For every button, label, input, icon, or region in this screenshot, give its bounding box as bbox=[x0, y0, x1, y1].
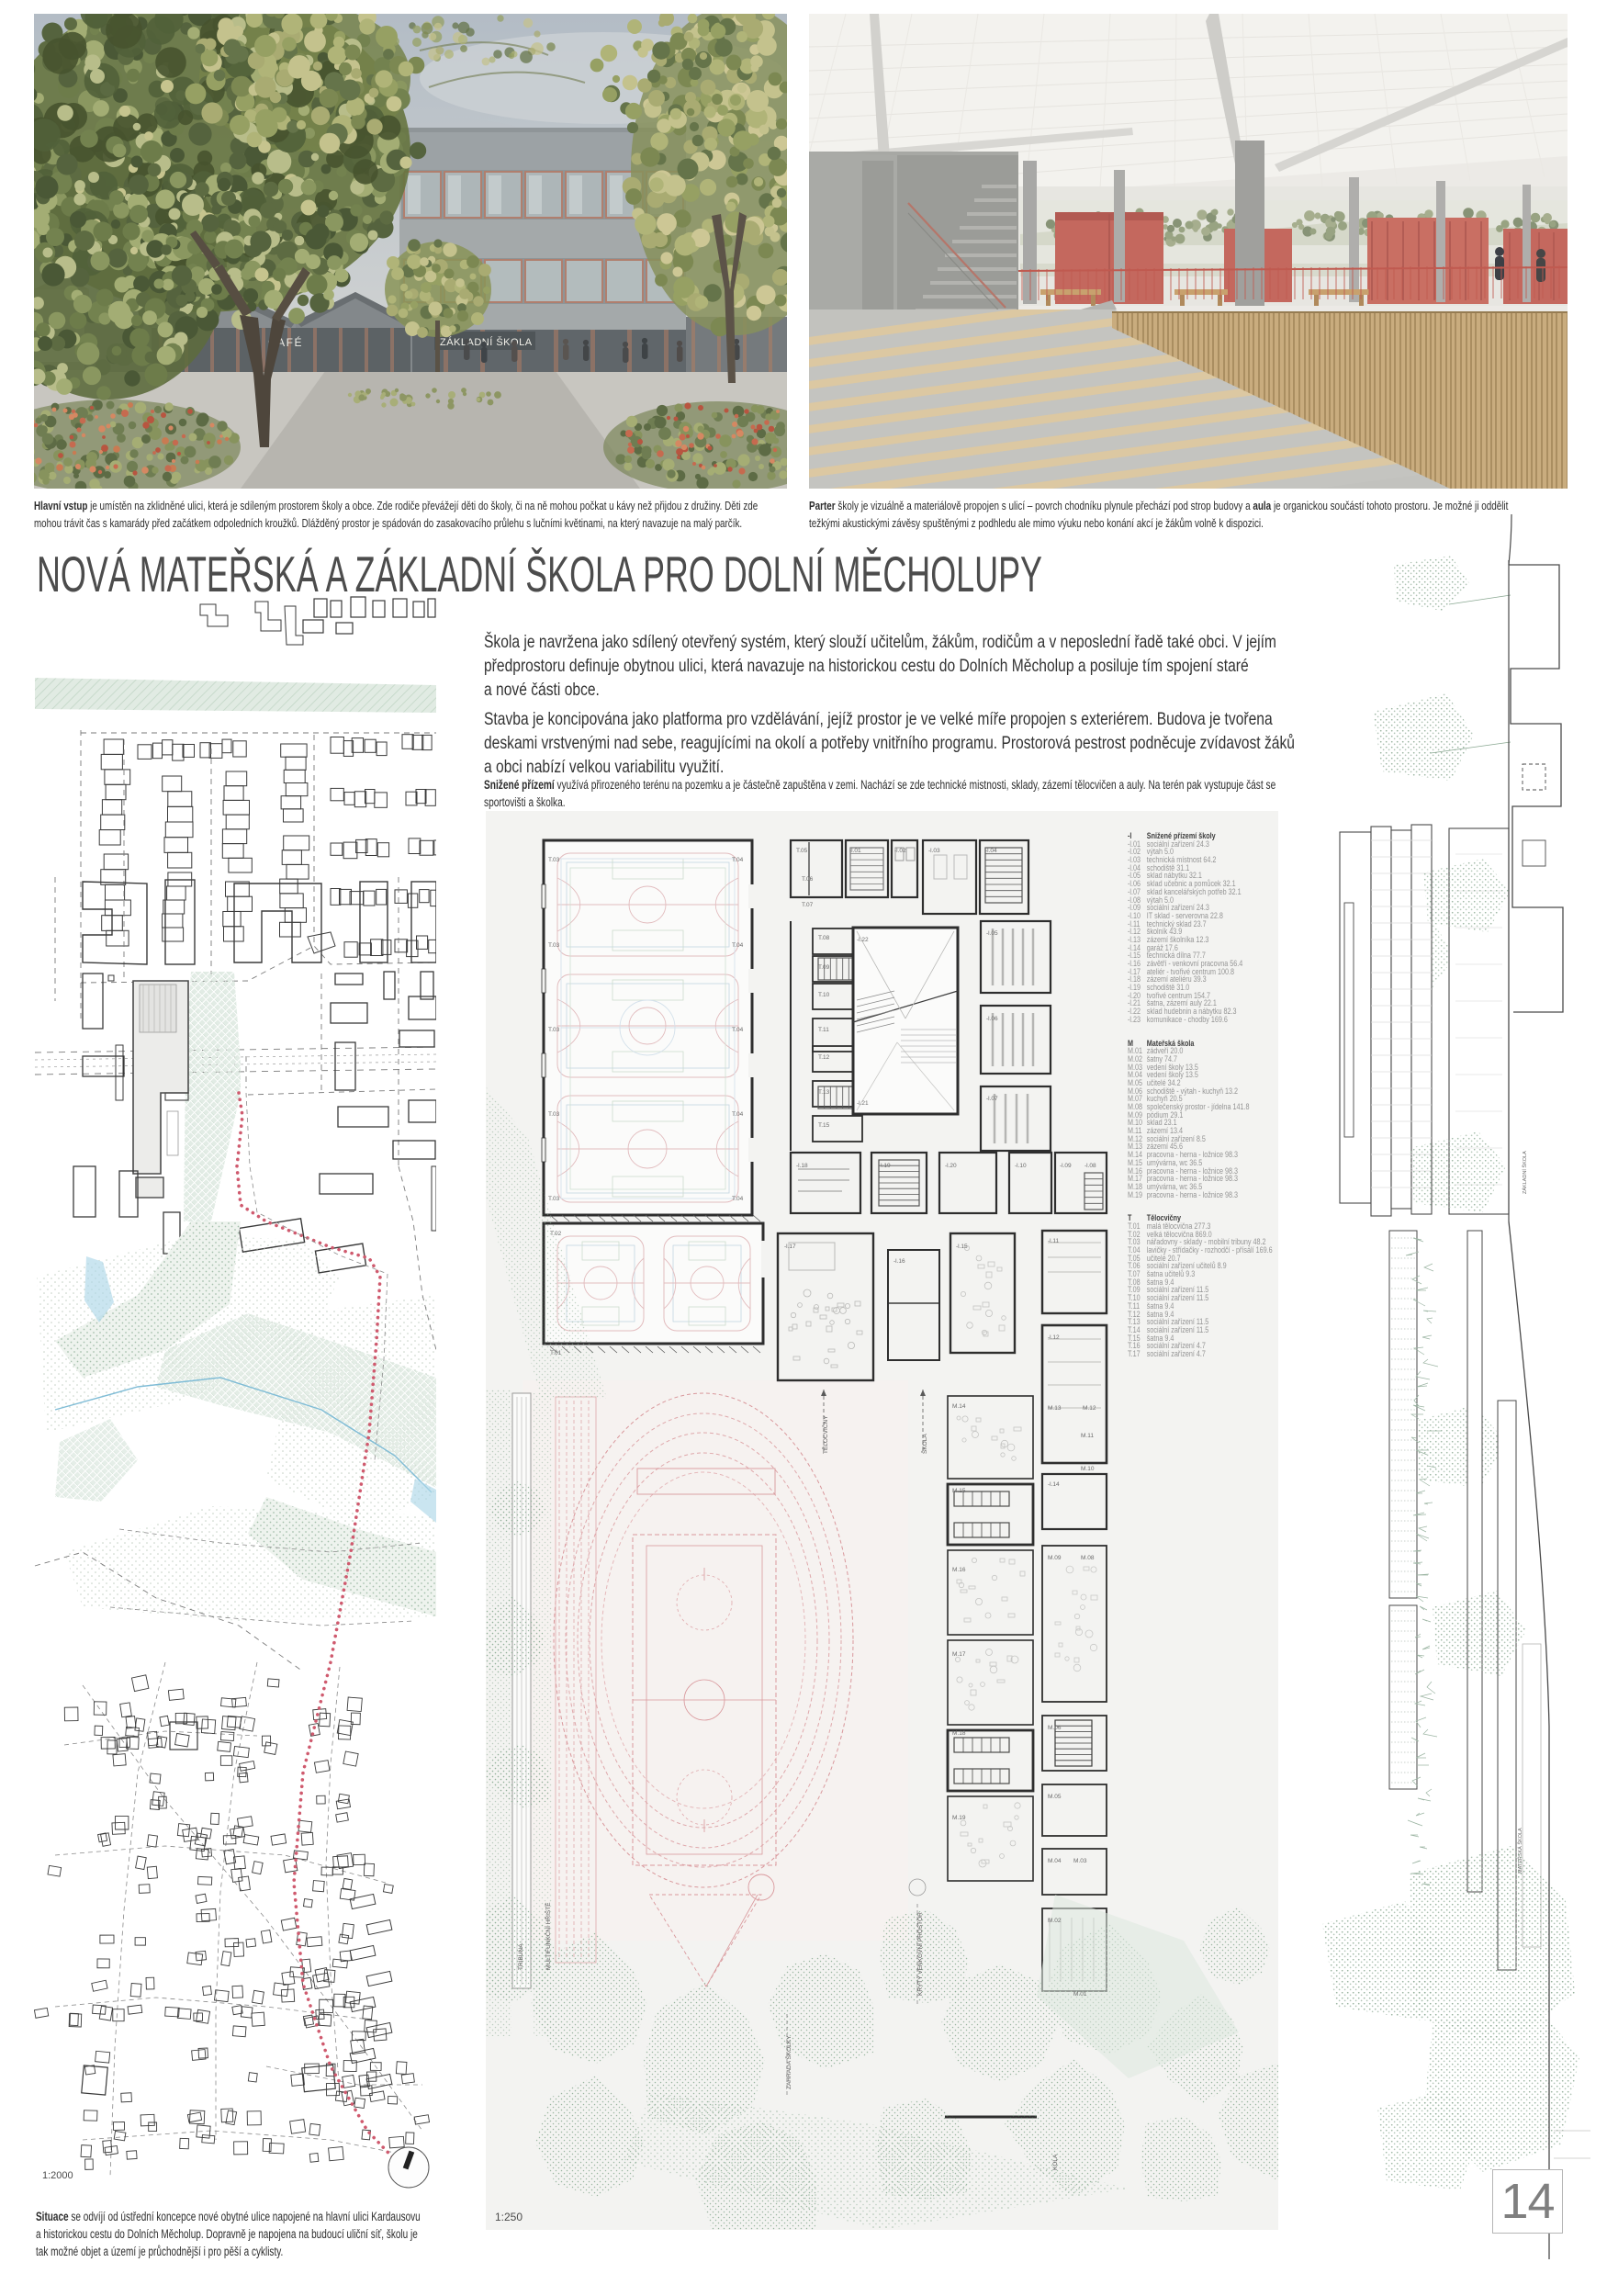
svg-text:M.12: M.12 bbox=[1083, 1405, 1096, 1412]
svg-text:TĚLOCVIČNY: TĚLOCVIČNY bbox=[821, 1415, 829, 1454]
svg-text:M.17: M.17 bbox=[952, 1651, 966, 1658]
svg-text:ZAHRADA ŠKOLKY: ZAHRADA ŠKOLKY bbox=[784, 2035, 792, 2089]
svg-text:-l.16: -l.16 bbox=[893, 1258, 905, 1265]
svg-text:T.12: T.12 bbox=[818, 1054, 830, 1061]
svg-text:T.03: T.03 bbox=[548, 942, 560, 949]
svg-text:-l.01: -l.01 bbox=[849, 848, 861, 854]
svg-text:M.19: M.19 bbox=[952, 1815, 966, 1821]
svg-text:M.04: M.04 bbox=[1048, 1858, 1062, 1864]
svg-text:KOLA: KOLA bbox=[1052, 2154, 1059, 2170]
svg-text:M.05: M.05 bbox=[1048, 1794, 1062, 1800]
svg-text:-l.22: -l.22 bbox=[857, 937, 869, 943]
svg-text:T.08: T.08 bbox=[818, 935, 830, 941]
svg-text:M.11: M.11 bbox=[1081, 1433, 1094, 1439]
svg-text:-l.21: -l.21 bbox=[857, 1100, 869, 1107]
svg-text:M.02: M.02 bbox=[1048, 1918, 1062, 1924]
svg-text:M.15: M.15 bbox=[952, 1488, 966, 1494]
svg-text:T.13: T.13 bbox=[818, 1089, 830, 1096]
svg-text:ŠKOLA: ŠKOLA bbox=[920, 1434, 928, 1454]
svg-text:T.05: T.05 bbox=[796, 848, 808, 854]
svg-text:T.10: T.10 bbox=[818, 992, 830, 998]
svg-text:T.07: T.07 bbox=[802, 902, 814, 908]
svg-text:-l.11: -l.11 bbox=[1048, 1238, 1060, 1244]
svg-text:-l.19: -l.19 bbox=[879, 1163, 891, 1169]
svg-text:ZÁKLADNÍ ŠKOLA: ZÁKLADNÍ ŠKOLA bbox=[440, 336, 533, 348]
svg-text:M.09: M.09 bbox=[1048, 1555, 1062, 1561]
svg-text:-l.06: -l.06 bbox=[986, 1016, 998, 1022]
svg-text:-l.10: -l.10 bbox=[1015, 1163, 1027, 1169]
svg-text:M.08: M.08 bbox=[1081, 1555, 1095, 1561]
svg-text:KRYTÝ VENKOVNÍ PROSTOR: KRYTÝ VENKOVNÍ PROSTOR bbox=[916, 1912, 924, 1996]
svg-text:-l.03: -l.03 bbox=[928, 848, 940, 854]
svg-text:M.16: M.16 bbox=[952, 1567, 966, 1573]
svg-text:T.09: T.09 bbox=[818, 964, 830, 971]
svg-text:-l.20: -l.20 bbox=[945, 1163, 957, 1169]
svg-text:T.04: T.04 bbox=[732, 942, 744, 949]
svg-text:-l.17: -l.17 bbox=[784, 1244, 796, 1250]
svg-text:M.03: M.03 bbox=[1073, 1858, 1087, 1864]
svg-text:T.03: T.03 bbox=[548, 1027, 560, 1033]
svg-text:-l.09: -l.09 bbox=[1060, 1163, 1072, 1169]
svg-text:T.04: T.04 bbox=[732, 1027, 744, 1033]
svg-text:TRIBUNA: TRIBUNA bbox=[518, 1943, 524, 1970]
svg-text:MULTIFUNKČNÍ HŘIŠTĚ: MULTIFUNKČNÍ HŘIŠTĚ bbox=[544, 1902, 552, 1970]
svg-text:-l.12: -l.12 bbox=[1048, 1334, 1060, 1341]
svg-text:M.10: M.10 bbox=[1081, 1466, 1095, 1472]
svg-text:T.04: T.04 bbox=[732, 1111, 744, 1118]
svg-text:T.15: T.15 bbox=[818, 1122, 830, 1129]
svg-text:ZÁKLADNÍ ŠKOLA: ZÁKLADNÍ ŠKOLA bbox=[1522, 1151, 1528, 1194]
svg-text:T.03: T.03 bbox=[548, 857, 560, 863]
svg-text:T.01: T.01 bbox=[550, 1350, 562, 1356]
svg-text:T.04: T.04 bbox=[732, 1196, 744, 1202]
svg-text:-l.14: -l.14 bbox=[1048, 1481, 1060, 1488]
svg-text:M.14: M.14 bbox=[952, 1403, 966, 1410]
svg-text:T.04: T.04 bbox=[732, 857, 744, 863]
svg-text:T.11: T.11 bbox=[818, 1027, 829, 1033]
svg-text:-l.18: -l.18 bbox=[796, 1163, 808, 1169]
svg-text:-l.05: -l.05 bbox=[986, 930, 998, 937]
svg-text:-l.04: -l.04 bbox=[985, 848, 997, 854]
svg-text:1:2000: 1:2000 bbox=[42, 2170, 73, 2181]
svg-text:1:250: 1:250 bbox=[495, 2211, 523, 2223]
svg-text:T.03: T.03 bbox=[548, 1111, 560, 1118]
svg-text:T.02: T.02 bbox=[550, 1231, 562, 1237]
svg-text:M.01: M.01 bbox=[1073, 1991, 1087, 1998]
svg-text:-l.07: -l.07 bbox=[986, 1096, 998, 1102]
svg-text:-l.15: -l.15 bbox=[956, 1244, 968, 1250]
svg-text:M.13: M.13 bbox=[1048, 1405, 1062, 1412]
svg-text:T.03: T.03 bbox=[548, 1196, 560, 1202]
svg-text:-l.02: -l.02 bbox=[894, 848, 906, 854]
svg-text:T.06: T.06 bbox=[802, 876, 814, 883]
svg-text:M.06: M.06 bbox=[1048, 1725, 1062, 1731]
svg-text:-l.08: -l.08 bbox=[1084, 1163, 1096, 1169]
svg-text:M.18: M.18 bbox=[952, 1730, 966, 1737]
